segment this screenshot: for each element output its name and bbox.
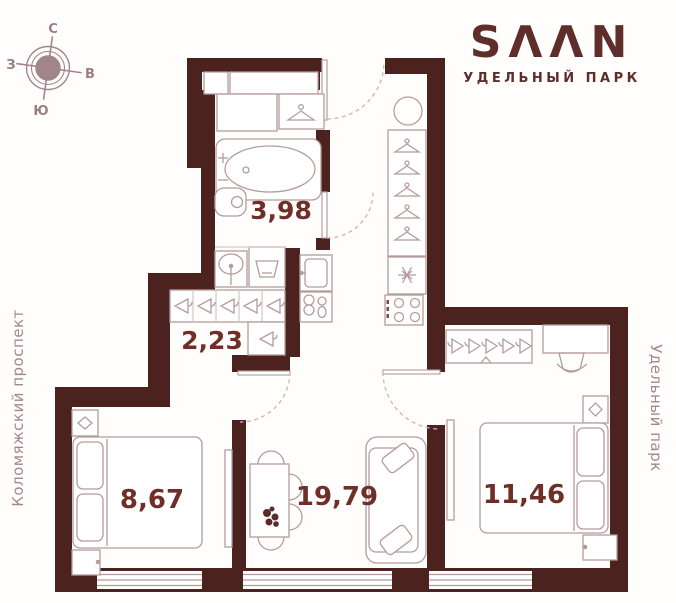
- nightstand: [72, 410, 98, 436]
- hallway-wardrobe: [170, 290, 285, 322]
- kitchen-cabinet: [300, 255, 332, 291]
- nightstand: [583, 396, 608, 423]
- kitchen-sink-icon: [300, 292, 332, 322]
- dining-table-icon: [250, 451, 302, 550]
- bathroom-shelves: [204, 72, 324, 131]
- room-area-bedroom-left: 8,67: [120, 485, 184, 515]
- nightstand: [72, 550, 100, 575]
- window-living-room: [243, 571, 392, 589]
- room-area-hallway: 2,23: [181, 326, 243, 355]
- window-bedroom-left: [97, 571, 202, 589]
- desk: [543, 325, 608, 353]
- bed-icon: [480, 423, 608, 533]
- boiler-icon: [394, 97, 422, 125]
- entry-door: [322, 60, 384, 120]
- floor-plan-page: С В Ю З SΛΛN УДЕЛЬНЫЙ ПАРК Коломяжский п…: [0, 0, 676, 603]
- kitchen-wardrobe: [388, 130, 426, 256]
- desk-chair-icon: [557, 353, 587, 372]
- bathroom-door: [322, 192, 373, 238]
- room-area-bedroom-right: 11,46: [483, 480, 565, 510]
- hallway-living-door: [238, 371, 290, 422]
- sink-icon: [215, 251, 247, 287]
- window-bedroom-right: [429, 571, 532, 589]
- bedroom-wardrobe: [446, 330, 532, 363]
- fridge-icon: [388, 257, 426, 294]
- floor-plan: 3,98 2,23 8,67 19,79 11,46: [0, 0, 676, 603]
- tv-bench: [225, 450, 232, 547]
- hallway-closet-cell: [248, 322, 285, 355]
- kitchen-living-door: [383, 370, 440, 429]
- toilet-icon: [215, 188, 246, 216]
- room-area-bathroom: 3,98: [250, 196, 312, 225]
- washer-icon: [249, 247, 285, 287]
- nightstand: [583, 535, 617, 560]
- stove-burners-icon: [385, 295, 423, 325]
- room-area-living-room: 19,79: [296, 482, 378, 512]
- tv-bench: [447, 420, 454, 520]
- windows: [97, 571, 532, 589]
